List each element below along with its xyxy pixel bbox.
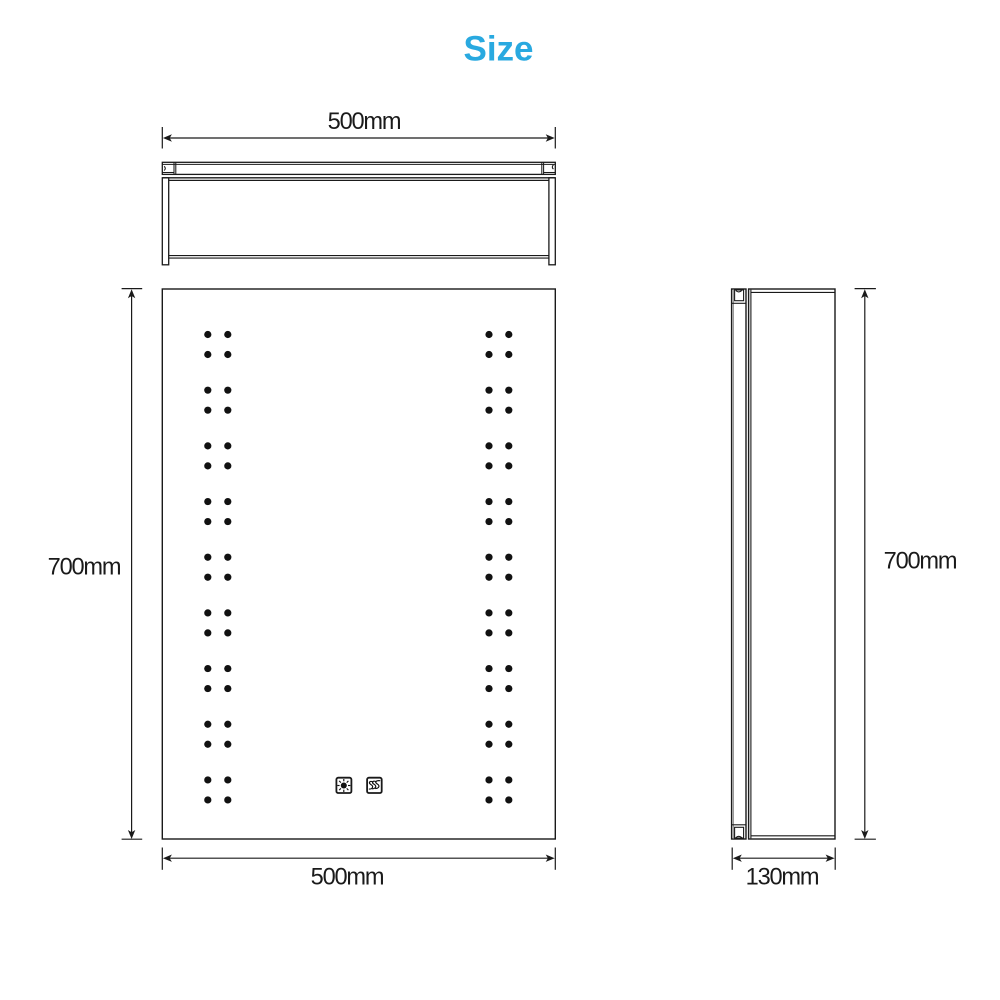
svg-text:130mm: 130mm xyxy=(746,864,819,890)
svg-text:700mm: 700mm xyxy=(884,548,957,574)
svg-text:500mm: 500mm xyxy=(328,109,401,135)
svg-text:500mm: 500mm xyxy=(311,864,384,890)
svg-text:Size: Size xyxy=(463,29,533,68)
svg-text:700mm: 700mm xyxy=(48,554,121,580)
